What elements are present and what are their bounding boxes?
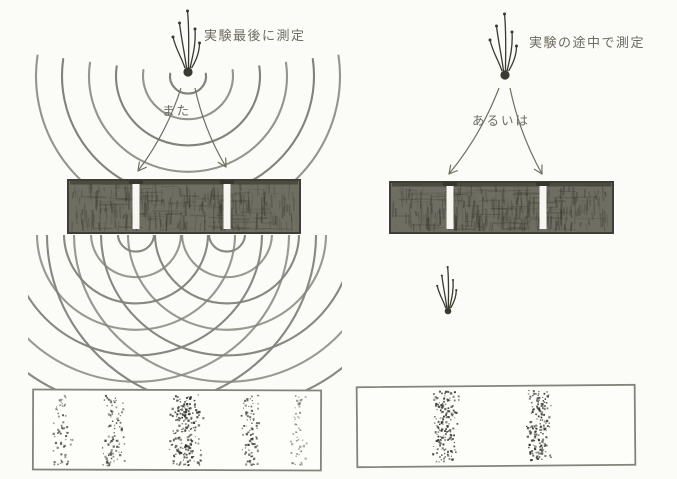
slit-opening (447, 186, 454, 229)
detection-screen-left (33, 389, 321, 470)
diagram-canvas: 実験最後に測定 実験の途中で測定 また あるいは (0, 0, 677, 479)
slit-opening (540, 186, 547, 229)
left-caption: 実験最後に測定 (204, 25, 306, 44)
slit-opening (224, 184, 231, 229)
wave-arc (209, 232, 245, 252)
wave-arc (62, 59, 314, 197)
measurement-arrow (510, 88, 542, 174)
path-arrows-right (449, 88, 542, 174)
measurement-arrow (449, 88, 499, 174)
emitter-squiggle (172, 10, 202, 77)
emitter-squiggle (436, 266, 457, 314)
particle-source-icon-right (489, 13, 519, 80)
left-or-label: また (162, 100, 191, 119)
measured-particle-icon (436, 266, 457, 314)
particle-dot (183, 67, 192, 76)
measurement-arrow (195, 88, 226, 167)
interference-arcs-from-slits (0, 210, 407, 408)
particle-dot (445, 308, 452, 315)
double-slit-barrier-right (390, 182, 614, 233)
scene-svg (0, 0, 677, 479)
double-slit-barrier-left (68, 180, 300, 233)
wave-arc (118, 232, 154, 252)
detection-screen-right (357, 385, 636, 467)
particle-source-icon-left (172, 10, 202, 77)
right-or-label: あるいは (472, 110, 530, 129)
slit-opening (133, 184, 140, 229)
emitter-squiggle (489, 13, 519, 80)
right-caption: 実験の途中で測定 (529, 32, 645, 51)
particle-dot (500, 70, 509, 79)
screen-body (357, 385, 636, 467)
wave-arc (0, 214, 289, 382)
